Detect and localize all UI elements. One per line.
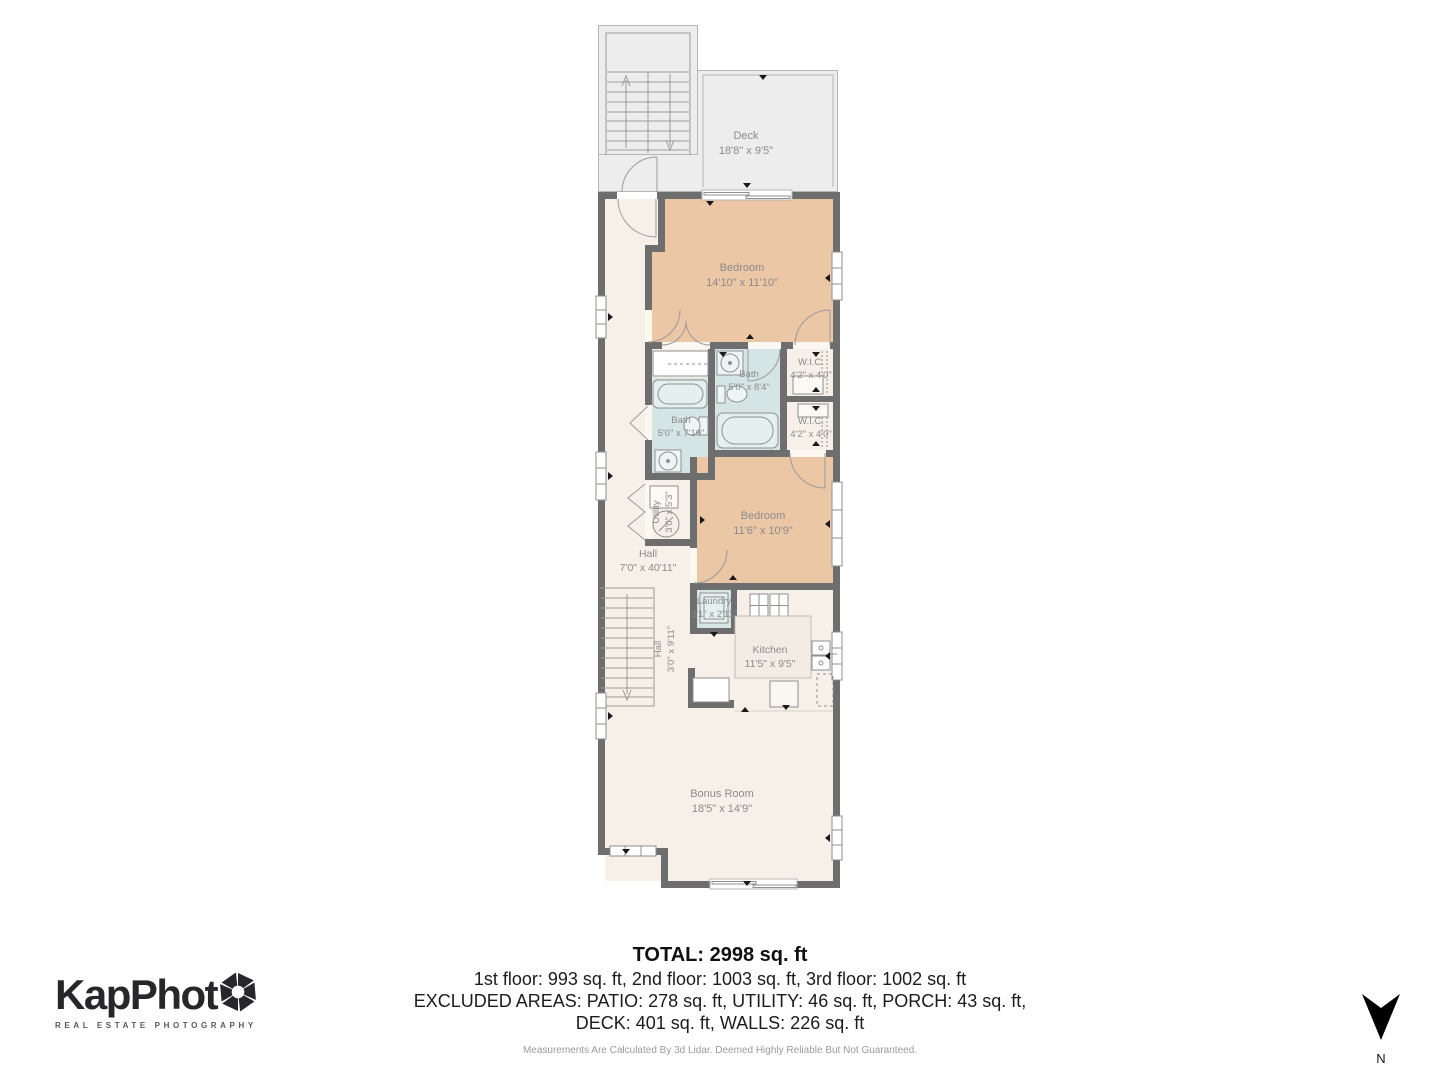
- wall-segment: [645, 473, 715, 480]
- wall-segment: [690, 628, 737, 634]
- wall-segment: [688, 700, 734, 708]
- room-label-bedroom-upper: Bedroom14'10" x 11'10": [706, 261, 778, 291]
- total-area-text: TOTAL: 2998 sq. ft: [0, 944, 1440, 967]
- room-label-bath-hall: Bath5'0" x 7'10": [658, 415, 705, 441]
- wall-segment: [645, 349, 652, 473]
- room-bath-ensuite: [715, 349, 780, 450]
- room-label-bonus-room: Bonus Room18'5" x 14'9": [690, 787, 754, 817]
- room-label-hall: Hall7'0" x 40'11": [620, 547, 677, 575]
- room-label-bedroom-lower: Bedroom11'6" x 10'9": [733, 509, 793, 539]
- stairwell-enclosure: [598, 25, 698, 155]
- aperture-icon: [218, 972, 258, 1017]
- north-arrow-icon: [1346, 992, 1416, 1044]
- wall-segment: [780, 349, 787, 457]
- logo-wordmark: KapPhot: [55, 974, 217, 1016]
- wall-segment: [598, 848, 668, 855]
- kapphoto-logo: KapPhot REAL ESTATE PHOTOGRAPHY: [55, 972, 270, 1030]
- wall-segment: [645, 342, 840, 349]
- floor-plan-page: Deck18'8" x 9'5" Bedroom14'10" x 11'10" …: [0, 0, 1440, 1080]
- wall-segment: [661, 881, 840, 888]
- room-label-wic-2: W.I.C.4'2" x 4'0": [790, 416, 832, 442]
- room-bedroom-upper-notch: [652, 252, 665, 342]
- wall-segment: [645, 252, 652, 310]
- wall-segment: [690, 457, 697, 590]
- room-label-wic-1: W.I.C.4'2" x 4'0": [790, 357, 832, 383]
- room-label-bath-ensuite: Bath5'0" x 8'4": [728, 369, 770, 395]
- room-label-laundry: Laundry3'1" x 2'11": [691, 596, 737, 622]
- room-label-hall-stairs: Hall3'0" x 9'11": [653, 626, 679, 672]
- wall-segment: [690, 583, 840, 590]
- wall-segment: [833, 192, 840, 888]
- disclaimer-text: Measurements Are Calculated By 3d Lidar.…: [0, 1045, 1440, 1056]
- logo-tagline: REAL ESTATE PHOTOGRAPHY: [55, 1021, 270, 1030]
- room-label-utility: Utility3'0" x 5'3": [651, 491, 677, 533]
- wall-segment: [780, 396, 840, 402]
- wall-segment: [658, 192, 665, 252]
- room-label-deck: Deck18'8" x 9'5": [719, 129, 773, 159]
- wall-segment: [645, 539, 697, 546]
- room-label-kitchen: Kitchen11'5" x 9'5": [745, 643, 796, 671]
- compass-label: N: [1346, 1051, 1416, 1066]
- wall-segment: [598, 192, 605, 855]
- wall-segment: [645, 245, 665, 252]
- wall-segment: [598, 192, 840, 199]
- wall-segment: [708, 450, 840, 457]
- compass: N: [1346, 992, 1416, 1066]
